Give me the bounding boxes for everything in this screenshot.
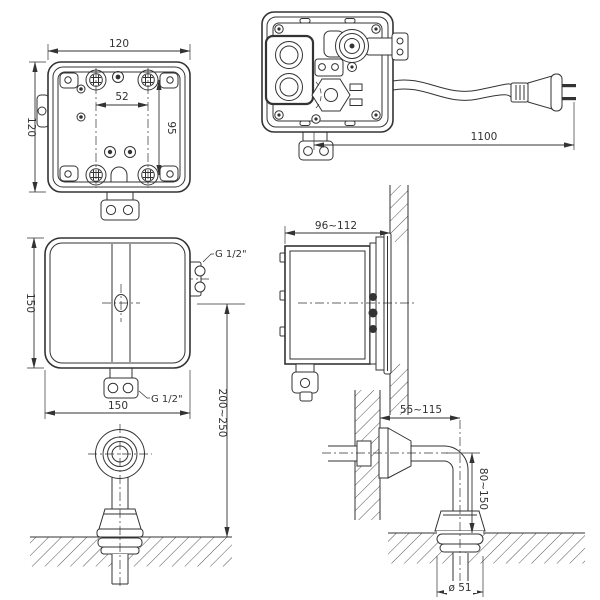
- plug-prong: [562, 97, 576, 100]
- spout-elbow: [411, 446, 468, 512]
- dim-text-dia-51: ø 51: [448, 582, 471, 594]
- dim-text-120-left: 120: [25, 117, 37, 137]
- label-outlet-thread: G 1/2": [151, 394, 183, 405]
- drawing-canvas: 120 120 52 95: [0, 0, 600, 600]
- bottom-screw-dot: [314, 117, 317, 120]
- outlet-stub: [300, 392, 312, 401]
- dimension-embed-depth: 96~112: [285, 220, 390, 244]
- inlet-thread-label: G 1/2": [203, 249, 247, 262]
- label-inlet-thread: G 1/2": [215, 249, 247, 260]
- outlet-bracket: [292, 372, 318, 393]
- plug-prong: [562, 84, 576, 87]
- wall-section: [390, 185, 408, 415]
- view-spout-side: 55~115 80~150 ø 51: [322, 390, 585, 597]
- floor-hatch: [388, 534, 585, 564]
- cover-outline: [45, 238, 190, 368]
- faceplate-stack: [370, 233, 391, 374]
- box-side: [280, 246, 370, 364]
- view-side-mounted: 96~112: [280, 185, 414, 415]
- installation-diagram: 120 120 52 95: [0, 0, 600, 600]
- dimension-mounting-height: 200~250: [197, 304, 245, 537]
- side-fitting: [392, 33, 408, 60]
- dim-text-150-bottom: 150: [108, 400, 128, 412]
- view-spout-front: [30, 424, 232, 589]
- dim-text-95: 95: [165, 121, 177, 134]
- dim-text-52: 52: [115, 91, 128, 103]
- dimension-height-left: 150: [24, 238, 44, 368]
- dim-text-80-150: 80~150: [477, 468, 489, 510]
- sensor-windows-edge: [369, 293, 378, 333]
- view-internal-unit: 1100: [262, 12, 576, 160]
- dim-text-120-top: 120: [109, 38, 129, 50]
- pipe-below-floor: [453, 553, 469, 583]
- view-front-cover: G 1/2" G 1/2" 150 150 200~250: [24, 238, 247, 537]
- wall-hatch: [390, 185, 408, 242]
- dim-text-96-112: 96~112: [315, 220, 357, 232]
- dimension-width-top: 120: [48, 38, 190, 60]
- supply-pipe: [328, 441, 371, 466]
- outlet-thread-label: G 1/2": [139, 391, 183, 405]
- view-back-panel: 120 120 52 95: [25, 38, 190, 220]
- dim-text-150-left: 150: [24, 293, 36, 313]
- valve-screw-dot: [350, 65, 353, 68]
- dim-text-1100: 1100: [471, 131, 498, 143]
- adjust-valve-knob: [336, 30, 369, 63]
- power-plug: [511, 74, 576, 111]
- dim-text-200-250: 200~250: [216, 389, 228, 438]
- power-cable: [393, 80, 513, 100]
- dim-text-55-115: 55~115: [400, 404, 442, 416]
